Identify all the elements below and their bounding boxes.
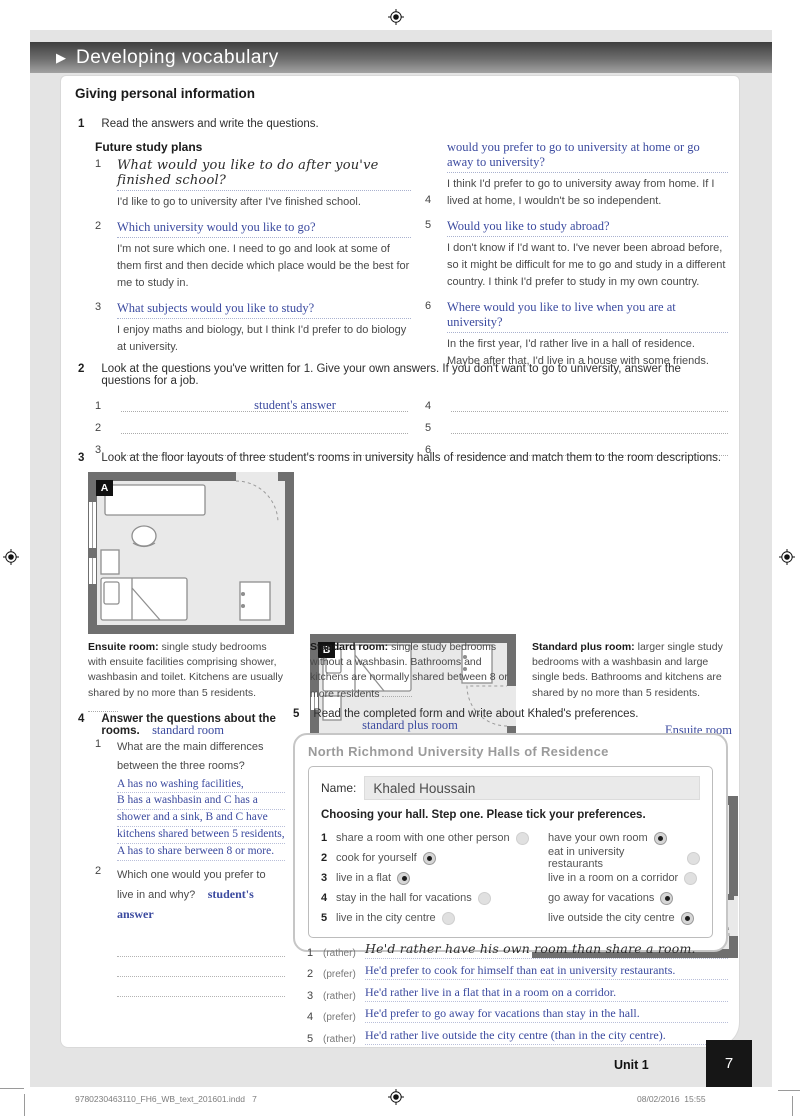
answer-number: 1 — [307, 947, 323, 959]
floor-plan-a: A — [88, 472, 294, 634]
banner-arrow-icon: ▶ — [56, 51, 66, 64]
crop-mark — [24, 1094, 25, 1116]
answer-hint: (rather) — [323, 991, 365, 1002]
answer-hint: (rather) — [323, 1034, 365, 1045]
registration-mark-top — [388, 9, 404, 25]
option-label: live outside the city centre — [548, 912, 675, 924]
question-item: 3 What subjects would you like to study?… — [95, 301, 411, 356]
printed-answer: I think I'd prefer to go to university a… — [447, 176, 728, 210]
line-number: 2 — [95, 422, 121, 434]
answer-line — [117, 977, 285, 997]
option-label: have your own room — [548, 832, 648, 844]
print-time: 15:55 — [684, 1094, 705, 1104]
printed-answer: I'd like to go to university after I've … — [117, 194, 411, 211]
row-number: 3 — [321, 872, 336, 884]
answer-number: 5 — [307, 1033, 323, 1045]
option-label: share a room with one other person — [336, 832, 510, 844]
answer-row: 4 (prefer) He'd prefer to go away for va… — [307, 1002, 728, 1024]
answer-row: 2 (prefer) He'd prefer to cook for himse… — [307, 959, 728, 981]
unit-label: Unit 1 — [614, 1058, 649, 1072]
match-blank — [88, 701, 118, 712]
question-number: 2 — [95, 865, 117, 998]
preference-row: 5 live in the city centre live outside t… — [321, 908, 700, 928]
answer-number: 2 — [307, 968, 323, 980]
exercise-3-header: 3 Look at the floor layouts of three stu… — [78, 452, 728, 464]
question-item: 5 Would you like to study abroad? I don'… — [425, 219, 728, 291]
bedside-cabinet — [101, 550, 119, 574]
printed-answer: I'm not sure which one. I need to go and… — [117, 241, 411, 292]
question-number: 3 — [95, 301, 117, 356]
section-title: Giving personal information — [75, 86, 255, 101]
registration-mark-bottom — [388, 1089, 404, 1105]
question-item: 6 Where would you like to live when you … — [425, 300, 728, 370]
question-written-answer: What subjects would you like to study? — [117, 301, 411, 319]
option-label: live in a flat — [336, 872, 391, 884]
wardrobe — [240, 582, 270, 620]
option-label: cook for yourself — [336, 852, 417, 864]
print-page: 7 — [252, 1094, 257, 1104]
question-written-answer: would you prefer to go to university at … — [447, 140, 728, 173]
option-label: eat in university restaurants — [548, 846, 681, 870]
name-field: Khaled Houssain — [364, 776, 700, 800]
line-number: 1 — [95, 400, 121, 412]
pillow — [104, 582, 119, 604]
exercise-1-subtitle: Future study plans — [95, 140, 202, 154]
question-written-answer: Would you like to study abroad? — [447, 219, 728, 237]
exercise-1-left-column: 1 What would you like to do after you've… — [95, 158, 411, 365]
radio-button — [681, 912, 694, 925]
crop-mark — [792, 1096, 793, 1116]
exercise-5-answers: 1 (rather) He'd rather have his own room… — [307, 937, 728, 1045]
preference-row: 2 cook for yourself eat in university re… — [321, 848, 700, 868]
question-number: 6 — [425, 300, 447, 370]
answer-hint: (prefer) — [323, 969, 365, 980]
unit-banner: ▶ Developing vocabulary — [30, 42, 772, 73]
description-title: Standard room: — [310, 641, 388, 653]
registration-mark-left — [3, 549, 19, 565]
registration-mark-right — [779, 549, 795, 565]
answer-row: 5 (rather) He'd rather live outside the … — [307, 1023, 728, 1045]
question-item: 1 What would you like to do after you've… — [95, 158, 411, 211]
radio-button — [478, 892, 491, 905]
crop-mark — [778, 1090, 800, 1091]
question-item: 2 Which university would you like to go?… — [95, 220, 411, 292]
print-filename: 9780230463110_FH6_WB_text_201601.indd — [75, 1094, 245, 1104]
question-number: 5 — [425, 219, 447, 291]
exercise-instruction: Look at the questions you've written for… — [101, 363, 728, 387]
answer-line — [121, 417, 408, 434]
print-date: 08/02/2016 — [637, 1094, 680, 1104]
written-answer-line: A has to share berween 8 or more. — [117, 844, 285, 861]
plan-label-a: A — [96, 480, 113, 496]
written-answer-line: shower and a sink, B and C have — [117, 810, 285, 827]
chair — [132, 526, 156, 546]
halls-of-residence-form: North Richmond University Halls of Resid… — [293, 733, 728, 952]
exercise-1-header: 1 Read the answers and write the questio… — [78, 118, 319, 130]
exercise-number: 2 — [78, 363, 84, 387]
banner-title: Developing vocabulary — [76, 47, 279, 69]
radio-button — [423, 852, 436, 865]
written-answer-line: kitchens shared between 5 residents, — [117, 827, 285, 844]
answer-number: 3 — [307, 990, 323, 1002]
match-blank — [382, 686, 412, 697]
crop-mark — [0, 1088, 24, 1089]
form-body: Name: Khaled Houssain Choosing your hall… — [308, 766, 713, 938]
written-answer-line: A has no washing facilities, — [117, 777, 285, 794]
written-answer: He'd rather have his own room than share… — [365, 941, 728, 959]
description-title: Standard plus room: — [532, 641, 635, 653]
form-subtitle: Choosing your hall. Step one. Please tic… — [321, 809, 700, 821]
question-written-answer: Where would you like to live when you ar… — [447, 300, 728, 333]
option-label: stay in the hall for vacations — [336, 892, 472, 904]
print-timestamp: 08/02/2016 15:55 — [637, 1094, 706, 1104]
page-number-box: 7 — [706, 1040, 752, 1087]
radio-button — [516, 832, 529, 845]
answer-line — [451, 417, 728, 434]
answer-row: 1 (rather) He'd rather have his own room… — [307, 937, 728, 959]
preference-row: 3 live in a flat live in a room on a cor… — [321, 868, 700, 888]
question-item: 4 would you prefer to go to university a… — [425, 140, 728, 210]
students-answer-note: student's answer — [180, 398, 410, 413]
name-label: Name: — [321, 781, 356, 795]
preference-row: 1 share a room with one other person hav… — [321, 828, 700, 848]
answer-row: 3 (rather) He'd rather live in a flat th… — [307, 980, 728, 1002]
radio-button — [397, 872, 410, 885]
print-info-line: 9780230463110_FH6_WB_text_201601.indd 7 — [75, 1094, 257, 1104]
option-label: live in the city centre — [336, 912, 436, 924]
question-number: 1 — [95, 738, 117, 861]
exercise-number: 3 — [78, 452, 84, 464]
preference-row: 4 stay in the hall for vacations go away… — [321, 888, 700, 908]
exercise-5-header: 5 Read the completed form and write abou… — [293, 708, 733, 720]
question-item: 2 Which one would you prefer to live in … — [95, 865, 285, 998]
row-number: 5 — [321, 912, 336, 924]
exercise-instruction: Read the answers and write the questions… — [101, 118, 318, 130]
exercise-2-header: 2 Look at the questions you've written f… — [78, 363, 728, 387]
option-label: go away for vacations — [548, 892, 654, 904]
printed-answer: I enjoy maths and biology, but I think I… — [117, 322, 411, 356]
line-number: 4 — [425, 400, 451, 412]
printed-answer: I don't know if I'd want to. I've never … — [447, 240, 728, 291]
radio-button — [684, 872, 697, 885]
answer-hint: (rather) — [323, 948, 365, 959]
written-answer: He'd prefer to cook for himself than eat… — [365, 963, 728, 980]
radio-button — [654, 832, 667, 845]
radio-button — [687, 852, 700, 865]
exercise-instruction: Look at the floor layouts of three stude… — [101, 452, 721, 464]
written-answer: He'd rather live in a flat that in a roo… — [365, 985, 728, 1002]
answer-hint: (prefer) — [323, 1012, 365, 1023]
written-answer: He'd rather live outside the city centre… — [365, 1028, 728, 1045]
question-number: 1 — [95, 158, 117, 211]
question-text: What are the main differences between th… — [117, 738, 285, 777]
radio-button — [442, 912, 455, 925]
exercise-number: 4 — [78, 713, 84, 737]
exercise-1-right-column: 4 would you prefer to go to university a… — [425, 140, 728, 379]
row-number: 1 — [321, 832, 336, 844]
row-number: 4 — [321, 892, 336, 904]
row-number: 2 — [321, 852, 336, 864]
page-number: 7 — [725, 1055, 733, 1072]
line-number: 5 — [425, 422, 451, 434]
description-title: Ensuite room: — [88, 641, 159, 653]
exercise-number: 5 — [293, 708, 299, 720]
exercise-instruction: Read the completed form and write about … — [313, 708, 638, 720]
question-item: 1 What are the main differences between … — [95, 738, 285, 861]
radio-button — [660, 892, 673, 905]
written-answer: He'd prefer to go away for vacations tha… — [365, 1006, 728, 1023]
question-number: 2 — [95, 220, 117, 292]
desk — [105, 485, 205, 515]
answer-line — [451, 395, 728, 412]
answer-line — [117, 937, 285, 957]
question-number: 4 — [425, 194, 447, 210]
exercise-number: 1 — [78, 118, 84, 130]
exercise-4-body: 1 What are the main differences between … — [95, 738, 285, 997]
question-written-answer: Which university would you like to go? — [117, 220, 411, 238]
form-title: North Richmond University Halls of Resid… — [308, 744, 713, 759]
answer-line — [117, 957, 285, 977]
answer-number: 4 — [307, 1011, 323, 1023]
option-label: live in a room on a corridor — [548, 872, 678, 884]
exercise-2-right-lines: 4 5 6 — [425, 390, 728, 456]
exercise-4-header: 4 Answer the questions about the rooms. — [78, 713, 290, 737]
room-description-standard-plus: Standard plus room: larger single study … — [532, 640, 732, 739]
question-written-answer: What would you like to do after you've f… — [117, 158, 411, 191]
exercise-instruction: Answer the questions about the rooms. — [101, 713, 290, 737]
written-answer-line: B has a washbasin and C has a — [117, 793, 285, 810]
